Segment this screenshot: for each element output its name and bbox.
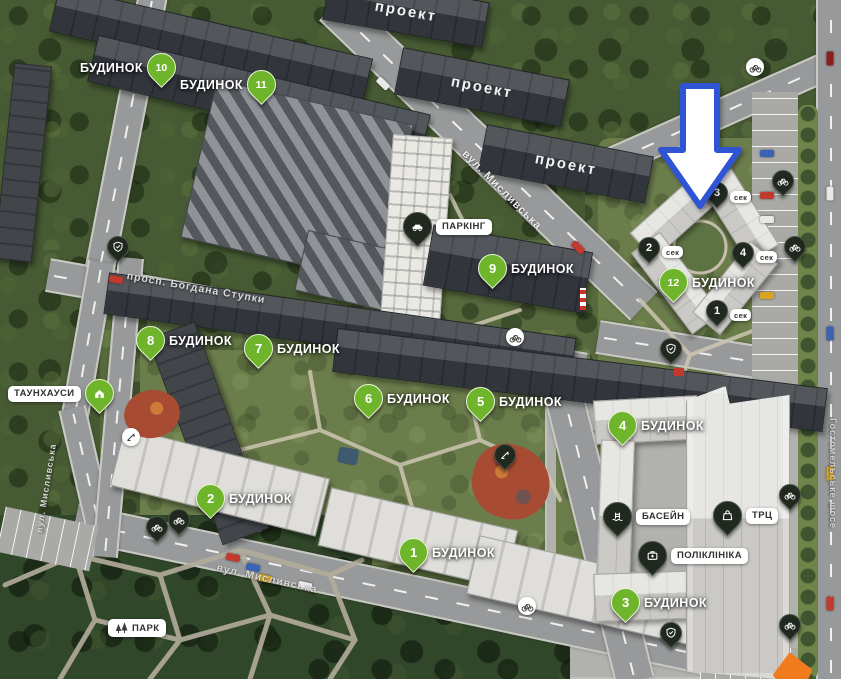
building-2-marker[interactable]: 2 БУДИНОК (196, 484, 292, 513)
bicycle-icon (779, 231, 810, 262)
building-5-label: БУДИНОК (499, 395, 562, 409)
bike-parking-pin[interactable] (146, 516, 168, 538)
trees-icon (115, 622, 129, 634)
bike-lane-icon (518, 597, 536, 615)
townhouses-marker[interactable]: ТАУНХАУСИ (8, 379, 114, 408)
building-3-marker[interactable]: 3 БУДИНОК (611, 588, 707, 617)
bike-parking-pin[interactable] (772, 170, 794, 192)
section-2-marker[interactable]: 2 сек (638, 237, 683, 259)
car (827, 187, 834, 201)
security-pin-1[interactable] (107, 236, 129, 258)
playground-structure (337, 446, 359, 465)
clinic-label: ПОЛІКЛІНІКА (671, 548, 748, 564)
security-pin-2[interactable] (660, 338, 682, 360)
clinic-marker[interactable]: ПОЛІКЛІНІКА (638, 541, 748, 570)
car (760, 150, 774, 157)
shield-check-icon (655, 333, 686, 364)
building-5-pin: 5 (460, 381, 501, 422)
car (760, 216, 774, 223)
barrier-gate (580, 288, 586, 310)
building-7-label: БУДИНОК (277, 342, 340, 356)
mall-marker[interactable]: ТРЦ (713, 501, 778, 530)
building-10-label: БУДИНОК (80, 61, 143, 75)
medical-cross-icon (632, 535, 673, 576)
slide-icon (489, 439, 520, 470)
building-7-pin: 7 (238, 328, 279, 369)
building-9-marker[interactable]: 9 БУДИНОК (478, 254, 574, 283)
building-7-marker[interactable]: 7 БУДИНОК (244, 334, 340, 363)
site-plan-map: проект проект проект вул. Мисливська (0, 0, 841, 679)
building-1-label: БУДИНОК (432, 546, 495, 560)
parking-marker[interactable]: ПАРКІНГ (403, 212, 492, 241)
building-6-pin: 6 (348, 378, 389, 419)
section-2-pin: 2 (633, 232, 664, 263)
bike-parking-pin[interactable] (784, 236, 806, 258)
bike-parking-pin[interactable] (779, 614, 801, 636)
townhouses-label: ТАУНХАУСИ (8, 386, 81, 402)
pool-label: БАСЕЙН (636, 509, 690, 525)
building-9-label: БУДИНОК (511, 262, 574, 276)
car (760, 192, 774, 199)
park-marker[interactable]: ПАРК (108, 619, 166, 637)
building-9-pin: 9 (472, 248, 513, 289)
bike-parking-pin[interactable] (168, 509, 190, 531)
car-icon (397, 206, 438, 247)
shield-check-icon (102, 231, 133, 262)
building-1-marker[interactable]: 1 БУДИНОК (399, 538, 495, 567)
annotation-arrow (655, 78, 745, 213)
building-6-marker[interactable]: 6 БУДИНОК (354, 384, 450, 413)
building-8-pin: 8 (130, 320, 171, 361)
street-name-hostomel: Гостомельське шосе (828, 418, 838, 529)
security-pin-3[interactable] (660, 622, 682, 644)
bicycle-icon (774, 479, 805, 510)
section-1-label: сек (730, 309, 751, 321)
car (827, 52, 834, 66)
building-3-label: БУДИНОК (644, 596, 707, 610)
building-12-label: БУДИНОК (692, 276, 755, 290)
section-4-pin: 4 (727, 237, 758, 268)
building-4-pin: 4 (602, 405, 643, 446)
mall-label: ТРЦ (746, 508, 778, 524)
section-2-label: сек (662, 246, 683, 258)
section-1-marker[interactable]: 1 сек (706, 300, 751, 322)
car (827, 327, 834, 341)
building-11-label: БУДИНОК (180, 78, 243, 92)
shield-check-icon (655, 617, 686, 648)
bicycle-icon (163, 504, 194, 535)
building-2-label: БУДИНОК (229, 492, 292, 506)
building-8-marker[interactable]: 8 БУДИНОК (136, 326, 232, 355)
park-label: ПАРК (132, 623, 159, 634)
building-2-pin: 2 (190, 478, 231, 519)
pool-icon (597, 496, 638, 537)
pool-marker[interactable]: БАСЕЙН (603, 502, 690, 531)
building-8-label: БУДИНОК (169, 334, 232, 348)
shopping-bag-icon (707, 495, 748, 536)
building-1-pin: 1 (393, 532, 434, 573)
red-kiosk (674, 368, 684, 376)
parking-label: ПАРКІНГ (436, 219, 492, 235)
car (760, 292, 774, 299)
building-3-pin: 3 (605, 582, 646, 623)
bicycle-icon (774, 609, 805, 640)
building-11-pin: 11 (241, 64, 282, 105)
section-4-marker[interactable]: 4 сек (732, 242, 777, 264)
building-4-marker[interactable]: 4 БУДИНОК (608, 411, 704, 440)
building-5-marker[interactable]: 5 БУДИНОК (466, 387, 562, 416)
bike-parking-pin[interactable] (779, 484, 801, 506)
building-6-label: БУДИНОК (387, 392, 450, 406)
bicycle-icon (767, 165, 798, 196)
section-1-pin: 1 (701, 295, 732, 326)
building-10-pin: 10 (141, 47, 182, 88)
building-12-marker[interactable]: 12 БУДИНОК (659, 268, 755, 297)
playground-icon (122, 428, 140, 446)
playground-pin[interactable] (494, 444, 516, 466)
building-11-marker[interactable]: БУДИНОК 11 (180, 70, 276, 99)
building-12-pin: 12 (653, 262, 694, 303)
house-icon (79, 373, 120, 414)
building-10-marker[interactable]: БУДИНОК 10 (80, 53, 176, 82)
bike-lane-icon (746, 58, 764, 76)
building-4-label: БУДИНОК (641, 419, 704, 433)
bike-lane-icon (506, 328, 524, 346)
section-4-label: сек (756, 251, 777, 263)
car (827, 597, 834, 611)
